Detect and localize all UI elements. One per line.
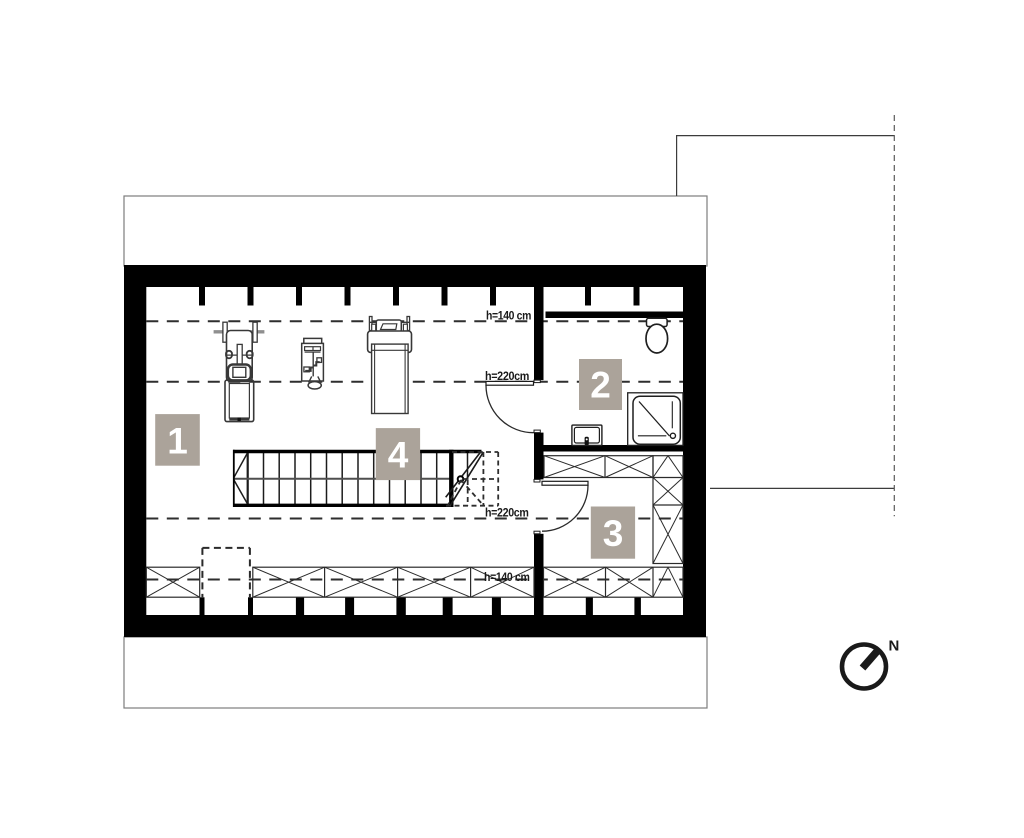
svg-text:2: 2 xyxy=(590,365,611,406)
svg-text:N: N xyxy=(889,638,900,655)
svg-text:h=220cm: h=220cm xyxy=(485,505,529,519)
svg-text:h=140 cm: h=140 cm xyxy=(484,570,530,584)
svg-text:3: 3 xyxy=(603,513,624,554)
svg-text:h=140 cm: h=140 cm xyxy=(486,309,531,323)
svg-text:h=220cm: h=220cm xyxy=(485,369,529,383)
svg-text:4: 4 xyxy=(388,434,409,475)
svg-text:1: 1 xyxy=(167,420,188,461)
